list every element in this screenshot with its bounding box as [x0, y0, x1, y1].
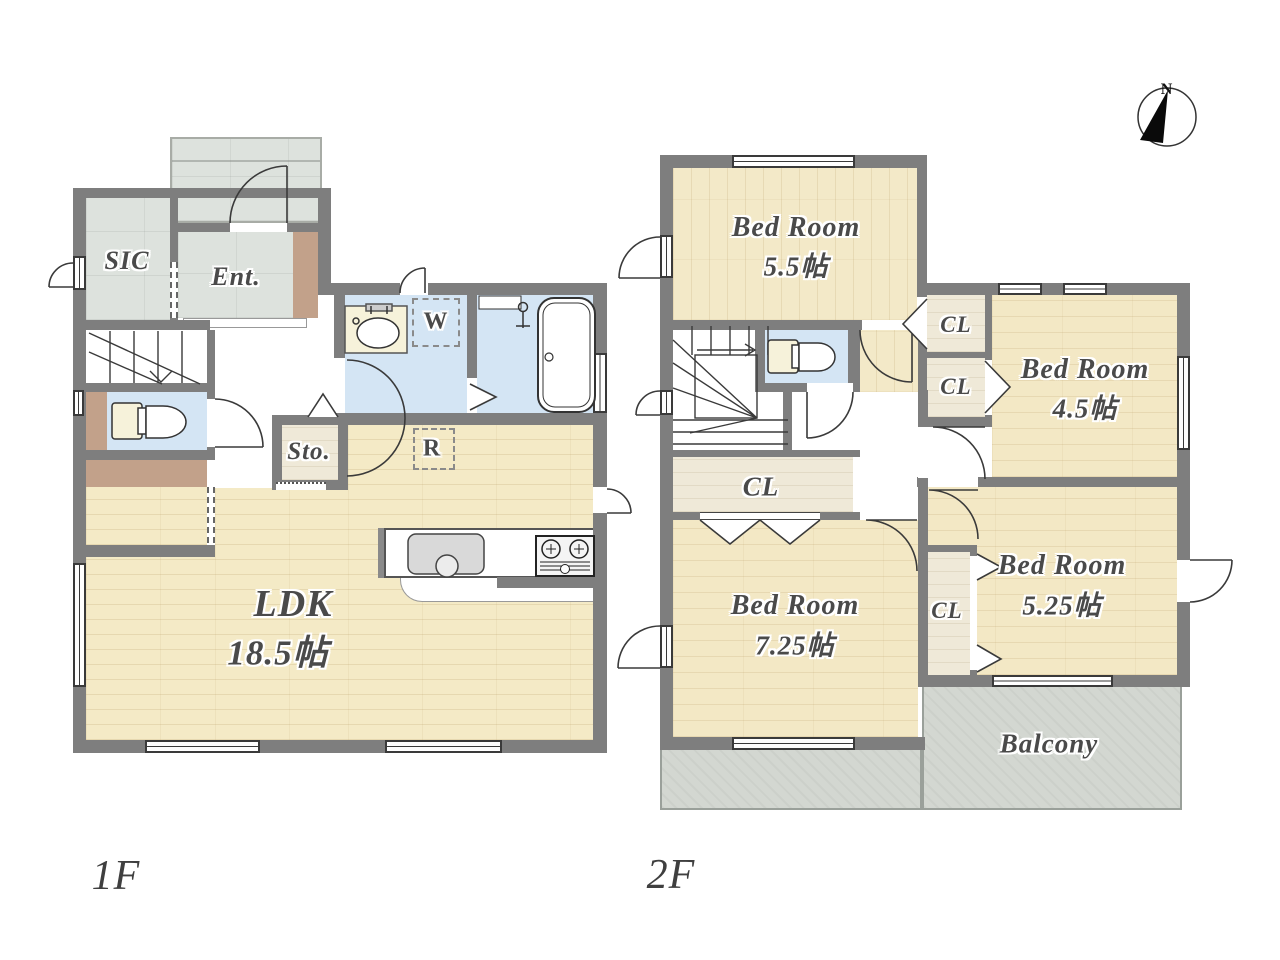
washroom-door-arc: [347, 360, 405, 476]
bedroom-4-5-door-arc: [933, 427, 985, 479]
right-window-arc: [1190, 560, 1232, 602]
label-ldk-size: 18.5帖: [227, 625, 328, 676]
floor-plan-canvas: SIC Ent. W R Sto. LDK 18.5帖 1F Bed Room …: [0, 0, 1280, 960]
bedroom-5-5-door-arc: [860, 330, 912, 382]
label-washer: W: [424, 309, 449, 336]
label-bedroom3-name: Bed Room: [998, 550, 1127, 582]
closet-bifold-icon: [985, 361, 1010, 413]
left-window-arc: [618, 626, 660, 668]
toilet-icon: [768, 340, 835, 373]
stairs-1f: [89, 331, 200, 384]
left-window-arc: [636, 391, 660, 415]
label-entrance: Ent.: [211, 262, 261, 292]
label-bedroom4-size: 7.25帖: [755, 624, 834, 663]
label-bedroom2-size: 4.5帖: [1053, 387, 1118, 426]
kitchen-sink-icon: [408, 534, 484, 577]
storage-bifold-icon: [308, 394, 338, 417]
stove-icon: [536, 536, 594, 576]
bedroom-7-25-door-arc: [866, 520, 917, 571]
label-bedroom1-name: Bed Room: [732, 212, 861, 244]
bathtub-icon: [479, 296, 595, 412]
toilet-2f-door-arc: [807, 392, 853, 438]
label-storage: Sto.: [287, 438, 331, 466]
label-floor-2f: 2F: [647, 851, 696, 899]
label-compass-north: N: [1161, 81, 1174, 99]
ldk-side-window-arc: [607, 489, 631, 513]
label-bedroom3-size: 5.25帖: [1022, 584, 1101, 623]
back-door-arc: [400, 268, 425, 293]
label-floor-1f: 1F: [92, 852, 141, 900]
label-bedroom4-name: Bed Room: [731, 590, 860, 622]
symbols-overlay: [0, 0, 1280, 960]
label-bedroom1-size: 5.5帖: [764, 245, 829, 284]
closet-bifold-icon: [760, 520, 820, 544]
label-ldk-name: LDK: [254, 582, 333, 626]
left-window-arc: [619, 237, 660, 278]
label-closet: CL: [940, 374, 971, 400]
sic-window-arc: [49, 263, 73, 287]
toilet-icon: [112, 403, 186, 439]
label-bedroom2-name: Bed Room: [1021, 354, 1150, 386]
closet-bifold-icon: [700, 520, 760, 544]
front-door-arc: [230, 166, 287, 223]
closet-bifold-icon: [903, 299, 927, 349]
washbasin-icon: [345, 304, 407, 353]
label-balcony: Balcony: [1000, 729, 1099, 760]
label-sic: SIC: [105, 246, 150, 276]
label-closet: CL: [940, 312, 971, 338]
toilet-door-arc: [215, 399, 263, 447]
label-closet: CL: [743, 472, 780, 503]
closet-bifold-icon: [977, 645, 1001, 672]
label-closet: CL: [931, 598, 962, 624]
bedroom-5-25-door-arc: [929, 490, 978, 539]
label-refrigerator: R: [423, 436, 441, 463]
bath-folding-door-icon: [470, 384, 496, 410]
